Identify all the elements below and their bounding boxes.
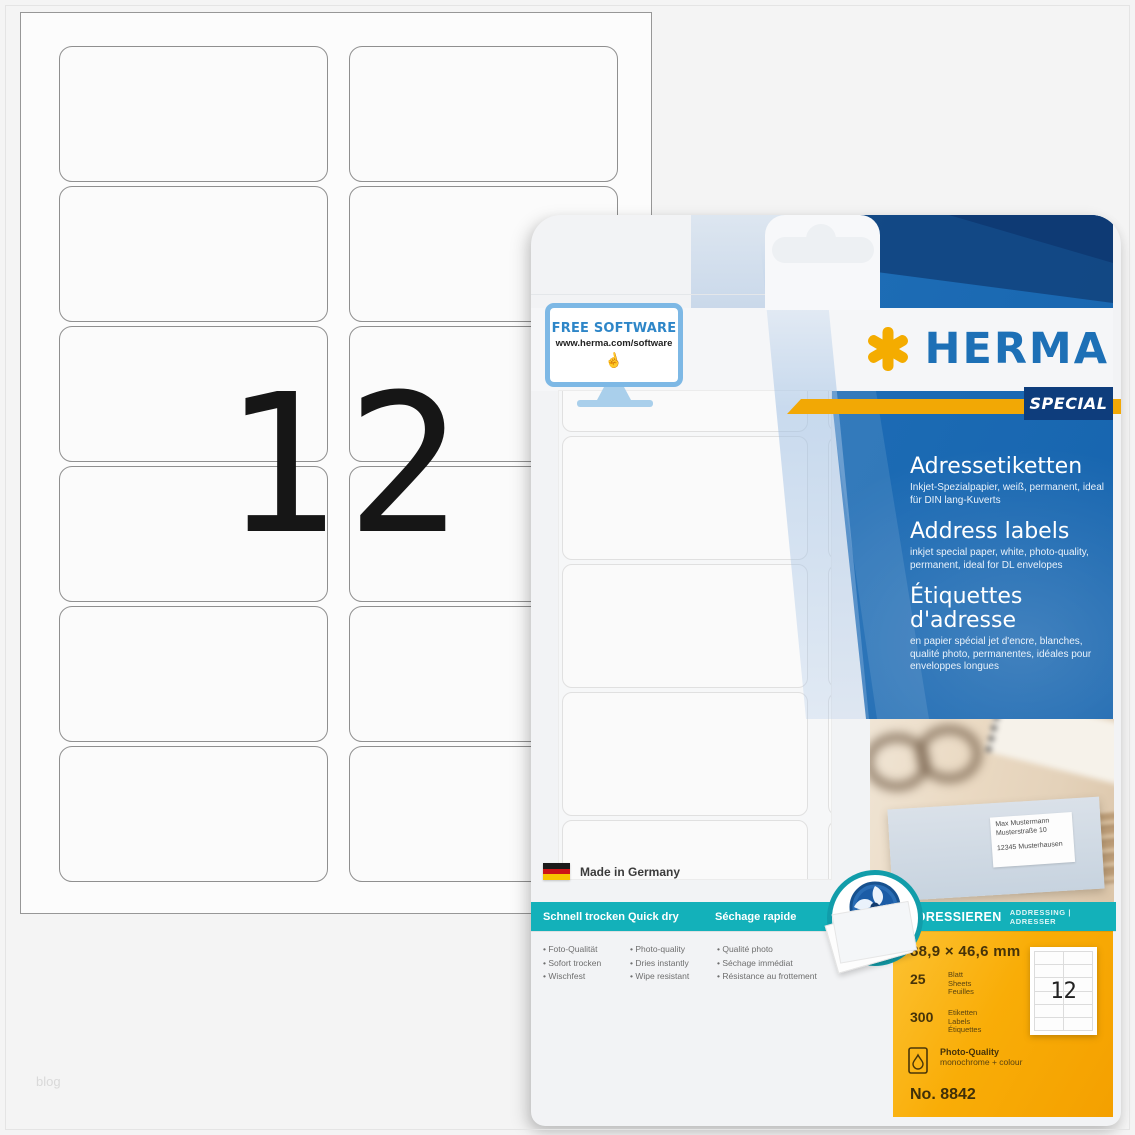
label-cell bbox=[59, 46, 328, 182]
brand-name: HERMA bbox=[924, 324, 1109, 374]
bullet-item: Dries instantly bbox=[630, 957, 717, 971]
article-number: No. 8842 bbox=[910, 1086, 976, 1104]
notebook-blur bbox=[985, 719, 1114, 789]
watermark-text: blog bbox=[36, 1074, 61, 1089]
euro-slot-bump bbox=[806, 224, 836, 254]
sheets-row: 25 Blatt Sheets Feuilles bbox=[910, 971, 974, 997]
brand-logo: HERMA bbox=[861, 315, 1111, 383]
title-fr: Étiquettes d'adresse bbox=[910, 585, 1108, 633]
yellow-stripe-end bbox=[1115, 399, 1121, 414]
label-cell bbox=[349, 46, 618, 182]
window-label-cell bbox=[562, 390, 808, 432]
made-in-germany: Made in Germany bbox=[543, 863, 680, 880]
free-software-monitor: FREE SOFTWARE www.herma.com/software ☝ bbox=[545, 303, 683, 387]
label-cell bbox=[59, 186, 328, 322]
made-in-text: Made in Germany bbox=[580, 865, 680, 879]
unit: Étiquettes bbox=[948, 1026, 981, 1035]
title-en: Address labels bbox=[910, 520, 1108, 544]
quality-row: Photo-Quality monochrome + colour bbox=[908, 1047, 1022, 1074]
addressing-group: ADRESSIEREN ADDRESSING | ADRESSER bbox=[907, 902, 1116, 931]
window-label-cell bbox=[828, 820, 832, 880]
blister-fold-line bbox=[531, 294, 765, 295]
herma-asterisk-icon bbox=[865, 326, 911, 372]
title-de: Adressetiketten bbox=[910, 455, 1108, 479]
header-de: Schnell trocken bbox=[543, 902, 625, 931]
label-cell bbox=[59, 746, 328, 882]
mini-label-count: 12 bbox=[1030, 947, 1097, 1035]
address-label-sample: Max Mustermann Musterstraße 10 12345 Mus… bbox=[990, 812, 1075, 868]
bullet-item: Sofort trocken bbox=[543, 957, 630, 971]
label-cell bbox=[59, 606, 328, 742]
free-software-title: FREE SOFTWARE bbox=[552, 321, 677, 336]
header-fr: Séchage rapide bbox=[715, 902, 796, 931]
product-package: SPECIAL HERMA Adressetiketten Inkjet-Spe… bbox=[531, 215, 1121, 1126]
feature-bar: Schnell trocken Quick dry Séchage rapide… bbox=[531, 902, 1116, 931]
bullet-item: Wipe resistant bbox=[630, 970, 717, 984]
free-software-url: www.herma.com/software bbox=[556, 338, 673, 349]
window-label-cell bbox=[562, 436, 808, 560]
quality-desc: monochrome + colour bbox=[940, 1057, 1022, 1067]
bullet-col-en: Photo-quality Dries instantly Wipe resis… bbox=[630, 943, 717, 984]
bullet-item: Qualité photo bbox=[717, 943, 833, 957]
addressing-secondary: ADDRESSING | ADRESSER bbox=[1010, 908, 1116, 926]
bullet-item: Foto-Qualität bbox=[543, 943, 630, 957]
desc-de: Inkjet-Spezialpapier, weiß, permanent, i… bbox=[910, 482, 1108, 507]
monitor-stand-base bbox=[577, 400, 653, 407]
bullet-item: Photo-quality bbox=[630, 943, 717, 957]
bullet-item: Wischfest bbox=[543, 970, 630, 984]
photo-quality-icon bbox=[908, 1047, 928, 1074]
product-image: 12 blog SPECIAL bbox=[0, 0, 1135, 1135]
label-size: 88,9 × 46,6 mm bbox=[910, 943, 1021, 960]
label-count-large: 12 bbox=[161, 348, 531, 583]
window-label-cell bbox=[562, 692, 808, 816]
spec-panel: 88,9 × 46,6 mm 25 Blatt Sheets Feuilles … bbox=[893, 931, 1113, 1117]
bullet-col-de: Foto-Qualität Sofort trocken Wischfest bbox=[543, 943, 630, 984]
sheets-units: Blatt Sheets Feuilles bbox=[948, 971, 974, 997]
euro-slot-hole bbox=[772, 237, 874, 263]
cursor-hand-icon: ☝ bbox=[603, 350, 624, 371]
glasses-blur bbox=[870, 725, 984, 795]
bullet-item: Résistance au frottement bbox=[717, 970, 833, 984]
hang-tab bbox=[765, 215, 880, 310]
bullet-item: Séchage immédiat bbox=[717, 957, 833, 971]
german-flag-icon bbox=[543, 863, 570, 880]
unit: Feuilles bbox=[948, 988, 974, 997]
labels-units: Etiketten Labels Étiquettes bbox=[948, 1009, 981, 1035]
labels-row: 300 Etiketten Labels Étiquettes bbox=[910, 1009, 981, 1035]
application-photo: Max Mustermann Musterstraße 10 12345 Mus… bbox=[870, 719, 1114, 905]
desc-en: inkjet special paper, white, photo-quali… bbox=[910, 547, 1108, 572]
header-en: Quick dry bbox=[628, 902, 679, 931]
mini-sheet-diagram: 12 bbox=[1030, 947, 1097, 1035]
special-badge: SPECIAL bbox=[1024, 387, 1113, 420]
window-label-cell bbox=[562, 564, 808, 688]
sheets-count: 25 bbox=[910, 971, 934, 997]
envelope: Max Mustermann Musterstraße 10 12345 Mus… bbox=[887, 797, 1104, 902]
address-line: 12345 Musterhausen bbox=[997, 840, 1071, 854]
bullet-col-fr: Qualité photo Séchage immédiat Résistanc… bbox=[717, 943, 833, 984]
quality-title: Photo-Quality bbox=[940, 1047, 1022, 1057]
labels-count: 300 bbox=[910, 1009, 934, 1035]
desc-fr: en papier spécial jet d'encre, blanches,… bbox=[910, 636, 1108, 674]
product-titles: Adressetiketten Inkjet-Spezialpapier, we… bbox=[910, 455, 1108, 687]
